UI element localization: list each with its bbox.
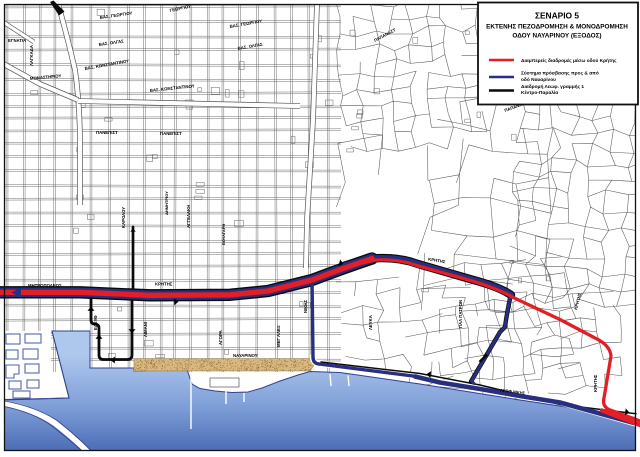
- svg-text:ΟΔΟΥ ΝΑΥΑΡΙΝΟΥ (ΕΞΟΔΟΣ): ΟΔΟΥ ΝΑΥΑΡΙΝΟΥ (ΕΞΟΔΟΣ): [512, 33, 601, 40]
- svg-text:ΠΑΝΕΠΙΣΤ: ΠΑΝΕΠΙΣΤ: [96, 130, 118, 135]
- svg-text:ΠΑΛ ΠΑΤΡΩΝ: ΠΑΛ ΠΑΤΡΩΝ: [458, 300, 463, 328]
- svg-text:ΜΗΤΡΟΠΟΛΕΩΣ: ΜΗΤΡΟΠΟΛΕΩΣ: [28, 283, 62, 288]
- svg-text:ΚΡΗΤΗΣ: ΚΡΗΤΗΣ: [155, 282, 173, 287]
- svg-text:ΕΚΤΕΝΗΣ ΠΕΖΟΔΡΟΜΗΣΗ & ΜΟΝΟΔΡΟΜ: ΕΚΤΕΝΗΣ ΠΕΖΟΔΡΟΜΗΣΗ & ΜΟΝΟΔΡΟΜΗΣΗ: [486, 24, 628, 31]
- svg-text:Κέντρο-Παραλία: Κέντρο-Παραλία: [521, 90, 558, 96]
- svg-text:ΕΓΝΑΤΙΑ: ΕΓΝΑΤΙΑ: [8, 38, 26, 43]
- svg-text:ΒΟΥΛΓΑΡΗ: ΒΟΥΛΓΑΡΗ: [221, 224, 226, 245]
- svg-text:ΛΕΥΚΑ: ΛΕΥΚΑ: [368, 315, 373, 330]
- svg-text:ΚΡΗΤΗΣ: ΚΡΗΤΗΣ: [593, 374, 598, 392]
- svg-text:ΑΓΓΕΛΑΚΗ: ΑΓΓΕΛΑΚΗ: [186, 205, 191, 228]
- svg-text:ΛΙΜΑΝΙ: ΛΙΜΑΝΙ: [143, 322, 148, 337]
- svg-text:ΜΕΓ ΑΛΕΞ: ΜΕΓ ΑΛΕΞ: [276, 325, 281, 347]
- svg-text:ΠΑΝΕΠΙΣΤ: ΠΑΝΕΠΙΣΤ: [160, 131, 182, 136]
- svg-text:ΑΓΟΡΑ: ΑΓΟΡΑ: [218, 330, 223, 345]
- svg-text:ΣΕΝΑΡΙΟ 5: ΣΕΝΑΡΙΟ 5: [535, 11, 579, 21]
- svg-text:Διαμπερείς διαδρομές μέσω οδού: Διαμπερείς διαδρομές μέσω οδού Κρήτης: [521, 58, 617, 64]
- svg-text:ΝΑΥΑΡΙΝΟΥ: ΝΑΥΑΡΙΝΟΥ: [233, 353, 258, 358]
- svg-text:οδό Ναυαρίνου: οδό Ναυαρίνου: [521, 77, 556, 83]
- svg-text:ΚΑΡΟΛΟΥ: ΚΑΡΟΛΟΥ: [121, 207, 126, 228]
- svg-text:ΝΙΚΗΣ: ΝΙΚΗΣ: [303, 299, 308, 313]
- svg-text:ΛΑΓΚΑΔΑ: ΛΑΓΚΑΔΑ: [29, 45, 34, 66]
- svg-text:Διαδρομή Λεωφ. γραμμής 1: Διαδρομή Λεωφ. γραμμής 1: [521, 84, 584, 90]
- svg-text:ΕΛΕΥΘ: ΕΛΕΥΘ: [93, 315, 98, 330]
- svg-text:ΔΗΜΗΤΡΙΟΥ: ΔΗΜΗΤΡΙΟΥ: [164, 191, 169, 215]
- svg-text:Σύστημα πρόσβασης προς & από: Σύστημα πρόσβασης προς & από: [521, 71, 599, 77]
